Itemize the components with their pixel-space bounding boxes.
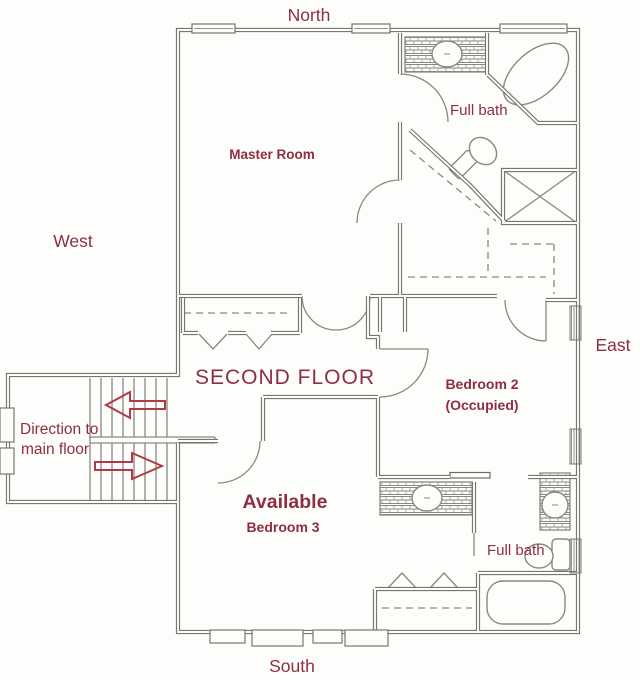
paper-background bbox=[0, 0, 640, 680]
window-west-1 bbox=[0, 408, 14, 442]
floor-plan-page: North West East South Master Room Full b… bbox=[0, 0, 640, 680]
compass-south-label: South bbox=[269, 656, 315, 676]
window-west-2 bbox=[0, 448, 14, 474]
floor-plan-drawing: North West East South Master Room Full b… bbox=[0, 0, 640, 680]
window-south-1 bbox=[210, 630, 245, 643]
stairs-note-line1: Direction to bbox=[20, 421, 98, 438]
bedroom3-status: Available bbox=[243, 491, 328, 513]
master-room-label: Master Room bbox=[229, 147, 315, 162]
lower-bath-toilet-tank bbox=[552, 539, 570, 570]
window-south-3 bbox=[313, 630, 342, 643]
lower-bath-tub bbox=[487, 581, 565, 624]
compass-north-label: North bbox=[288, 5, 331, 25]
window-south-4 bbox=[345, 630, 388, 646]
compass-west-label: West bbox=[53, 231, 93, 251]
window-east-2 bbox=[570, 429, 581, 464]
lower-full-bath-label: Full bath bbox=[487, 542, 545, 559]
stairs-note-line2: main floor bbox=[21, 441, 89, 458]
window-east-1 bbox=[570, 306, 581, 340]
window-east-3 bbox=[570, 539, 581, 573]
compass-east-label: East bbox=[595, 335, 630, 355]
floor-title: SECOND FLOOR bbox=[195, 366, 375, 389]
bedroom3-label: Bedroom 3 bbox=[246, 519, 319, 535]
bedroom2-label: Bedroom 2 bbox=[445, 376, 518, 392]
pocket-door bbox=[450, 473, 490, 479]
upper-full-bath-label: Full bath bbox=[450, 102, 508, 119]
window-south-2 bbox=[252, 630, 303, 646]
bedroom2-status: (Occupied) bbox=[445, 397, 518, 413]
